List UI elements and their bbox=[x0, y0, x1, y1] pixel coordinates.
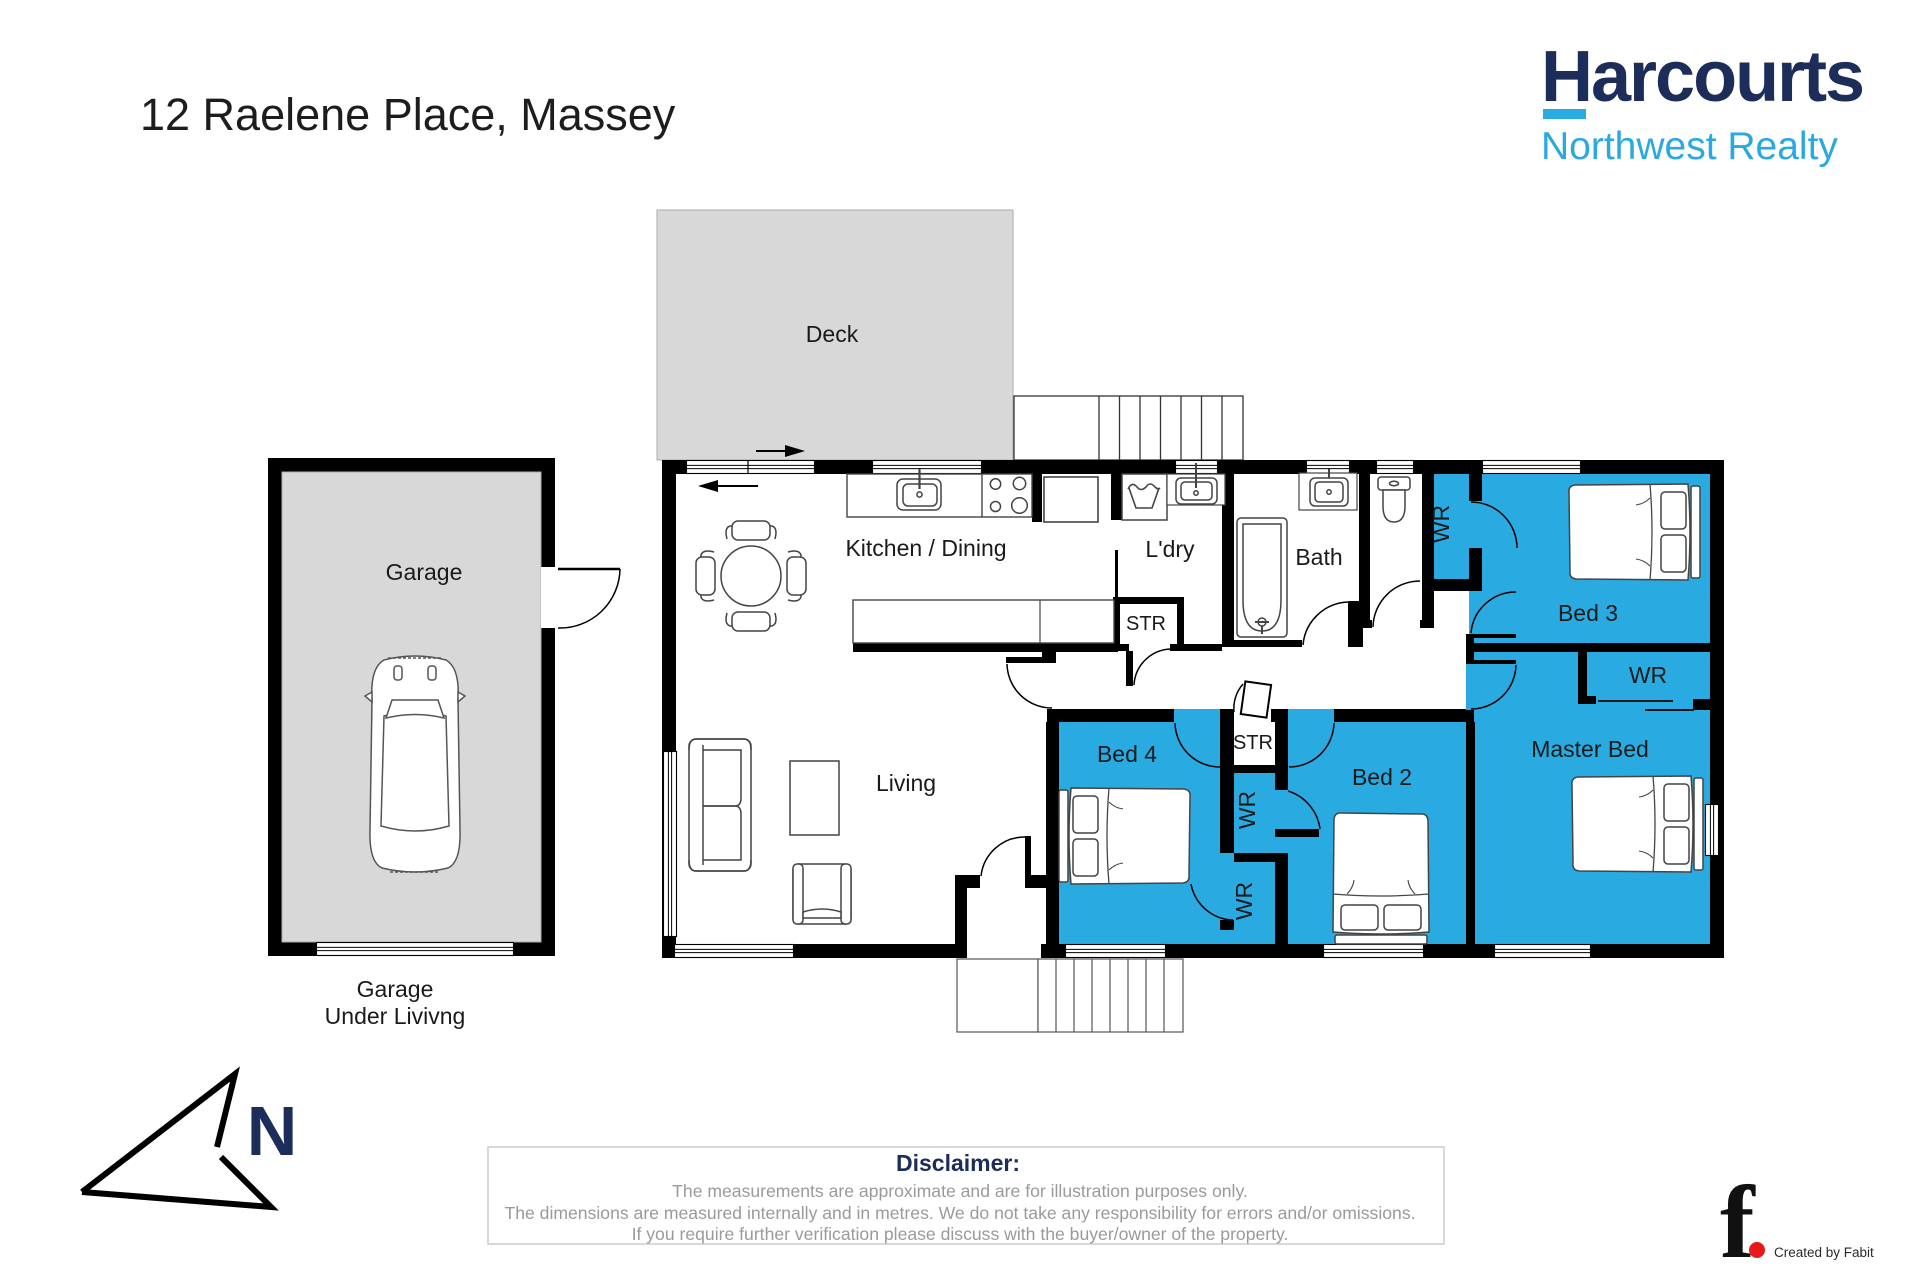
svg-text:N: N bbox=[247, 1092, 298, 1170]
svg-text:Master Bed: Master Bed bbox=[1531, 736, 1649, 762]
svg-text:Garage: Garage bbox=[386, 559, 463, 585]
svg-text:L'dry: L'dry bbox=[1145, 536, 1195, 562]
svg-text:WR: WR bbox=[1428, 505, 1454, 543]
svg-text:Northwest Realty: Northwest Realty bbox=[1541, 125, 1838, 168]
svg-text:WR: WR bbox=[1231, 882, 1257, 920]
svg-text:Bed 3: Bed 3 bbox=[1558, 600, 1618, 626]
svg-text:Kitchen / Dining: Kitchen / Dining bbox=[845, 535, 1006, 561]
svg-text:Created by Fabit: Created by Fabit bbox=[1774, 1245, 1874, 1260]
svg-text:If you require further verific: If you require further verification plea… bbox=[632, 1224, 1289, 1244]
svg-text:Harcourts: Harcourts bbox=[1541, 37, 1863, 117]
svg-text:Under Livivng: Under Livivng bbox=[325, 1003, 466, 1029]
svg-text:Garage: Garage bbox=[357, 976, 434, 1002]
svg-text:STR: STR bbox=[1126, 613, 1166, 635]
svg-text:WR: WR bbox=[1234, 791, 1260, 829]
svg-text:STR: STR bbox=[1233, 732, 1273, 754]
svg-text:The measurements are approxima: The measurements are approximate and are… bbox=[672, 1181, 1248, 1201]
svg-text:Bath: Bath bbox=[1295, 544, 1342, 570]
svg-text:12 Raelene Place, Massey: 12 Raelene Place, Massey bbox=[140, 89, 676, 140]
svg-text:Disclaimer:: Disclaimer: bbox=[896, 1150, 1020, 1176]
svg-text:WR: WR bbox=[1629, 662, 1667, 688]
svg-text:The dimensions are measured in: The dimensions are measured internally a… bbox=[504, 1203, 1415, 1223]
svg-text:Living: Living bbox=[876, 770, 936, 796]
svg-text:Deck: Deck bbox=[806, 321, 859, 347]
svg-text:Bed 2: Bed 2 bbox=[1352, 764, 1412, 790]
svg-text:Bed 4: Bed 4 bbox=[1097, 741, 1157, 767]
svg-text:f: f bbox=[1720, 1165, 1756, 1280]
